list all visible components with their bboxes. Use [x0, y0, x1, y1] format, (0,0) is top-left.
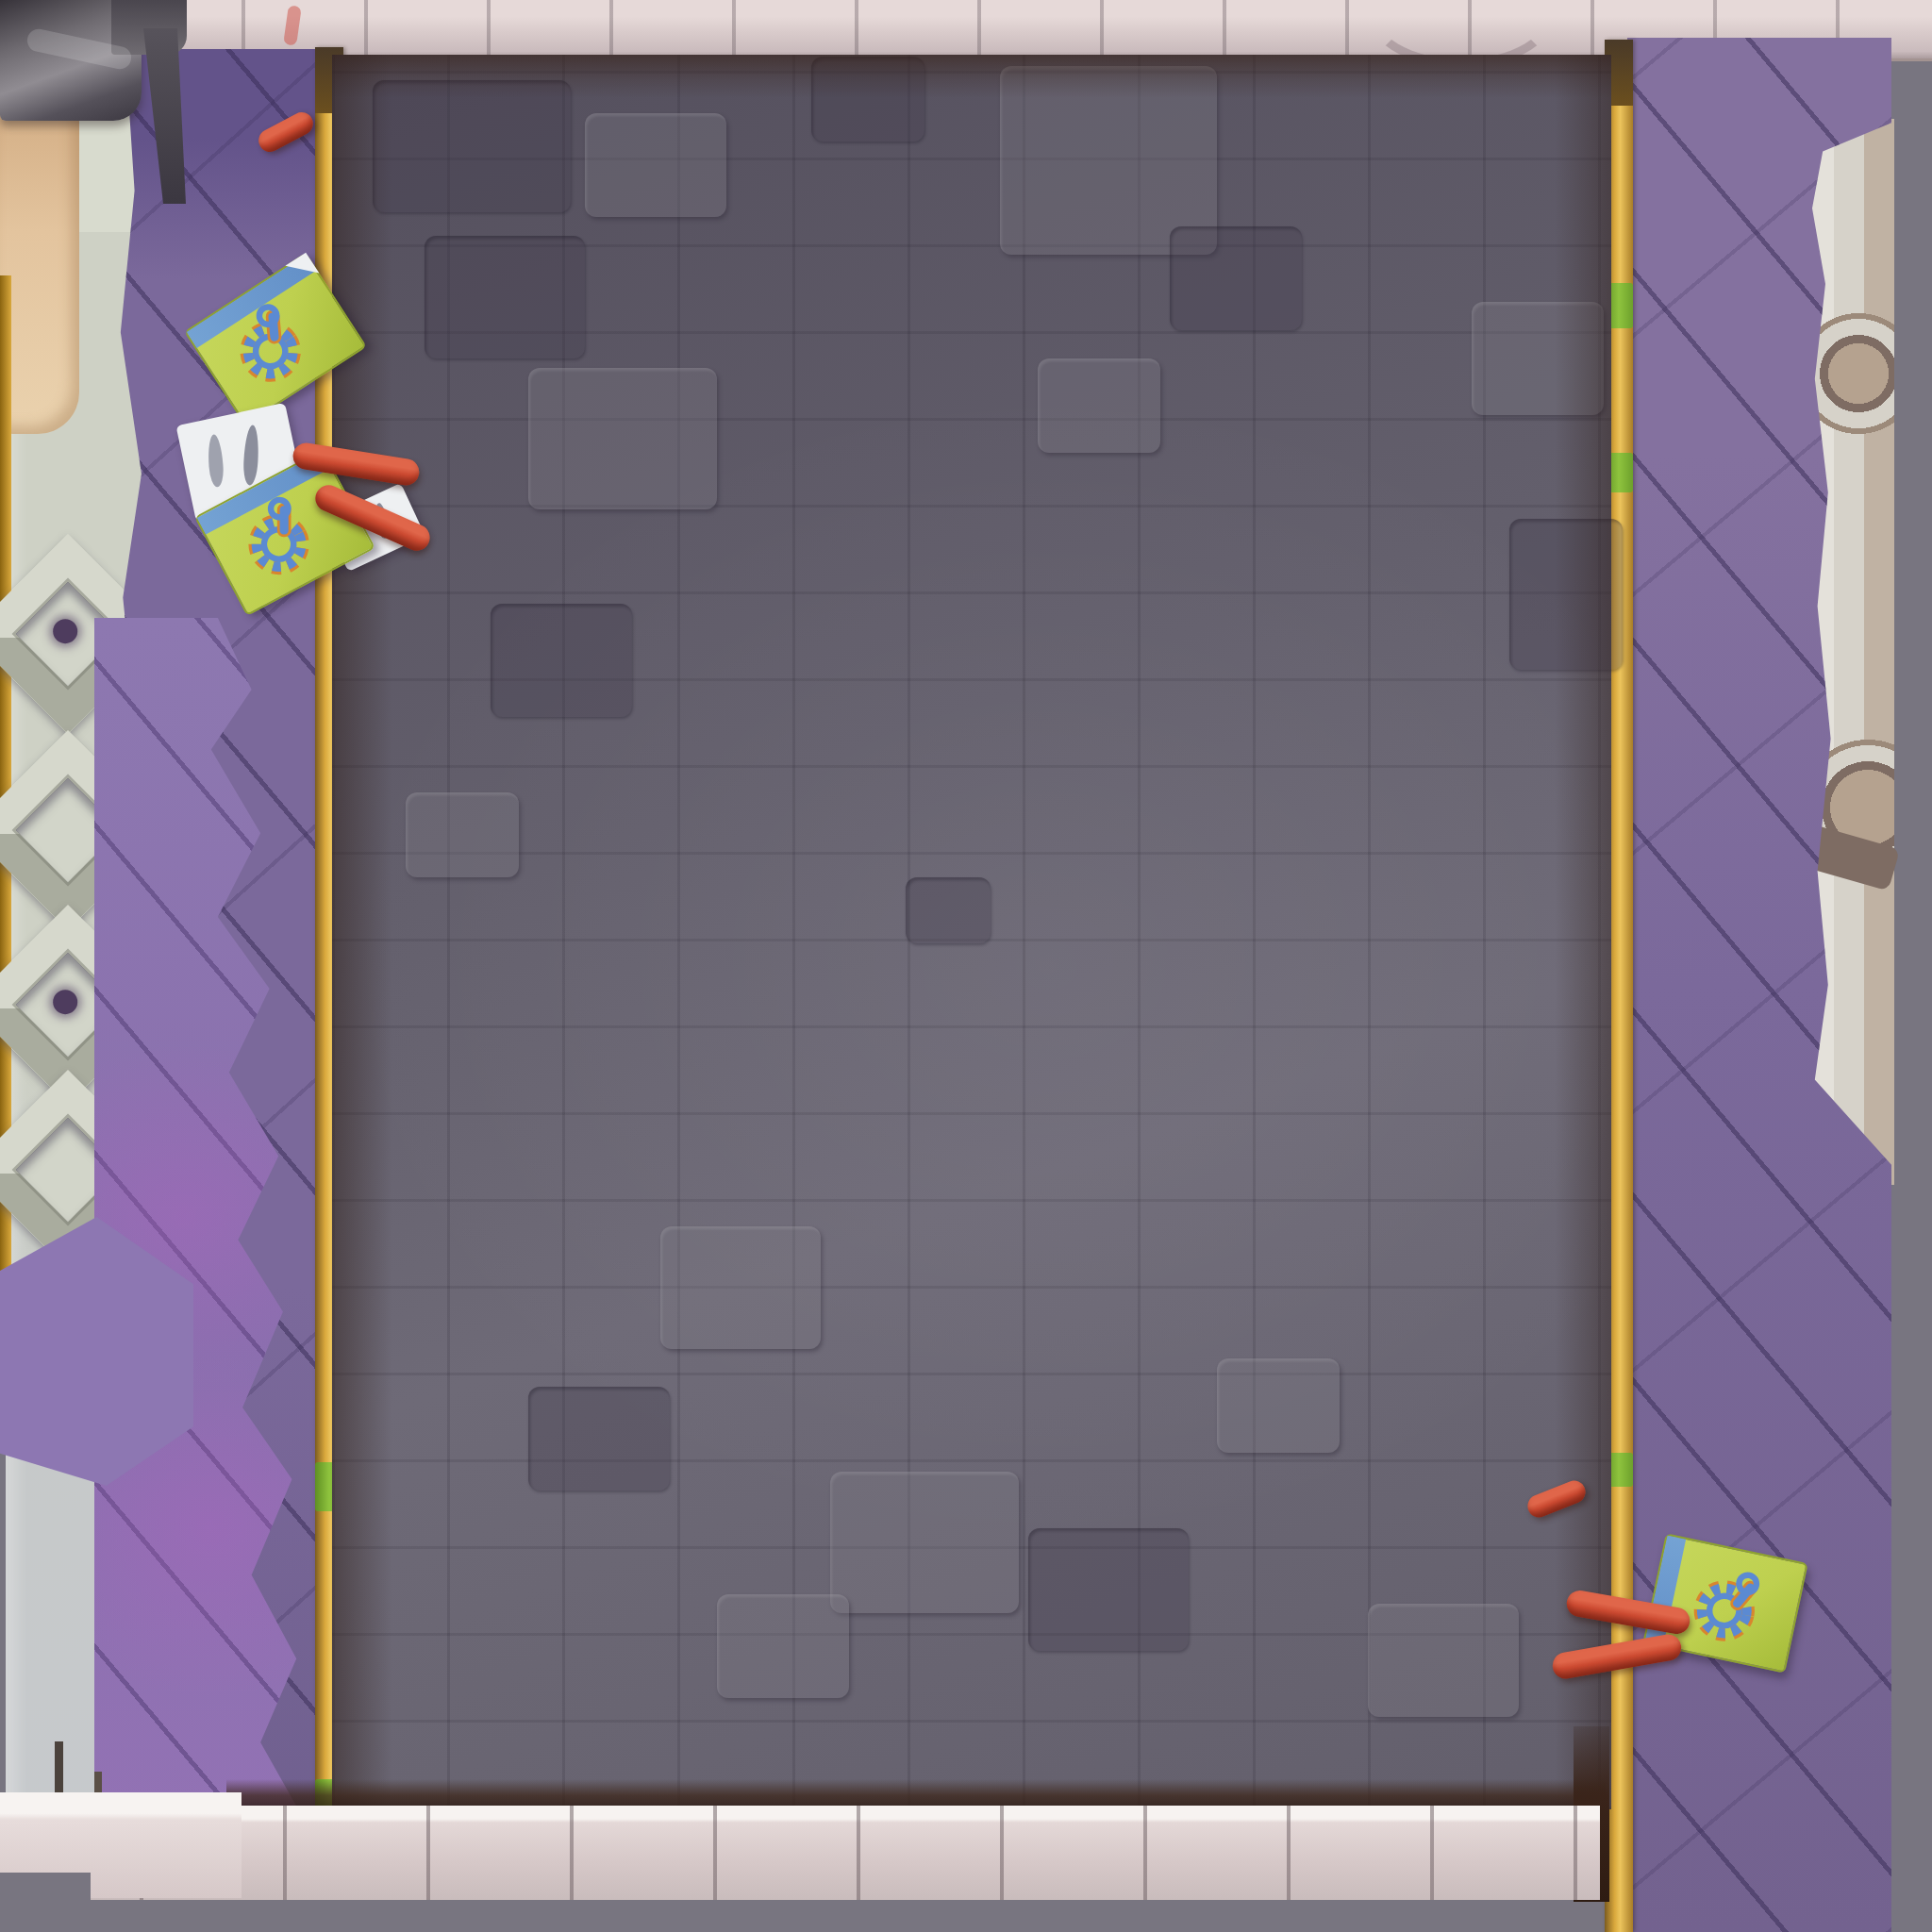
map-border-corner	[0, 1873, 91, 1932]
gear-wrench-emblem	[1671, 1554, 1790, 1660]
cobblestone	[425, 236, 585, 358]
cobblestone	[1217, 1358, 1340, 1453]
cobblestone	[373, 80, 571, 212]
cobblestone	[585, 113, 726, 217]
cobblestone	[660, 1226, 821, 1349]
cobblestone	[830, 1472, 1019, 1613]
cobblestone	[717, 1594, 849, 1698]
cobblestone-floor	[332, 55, 1611, 1809]
cobblestone	[528, 368, 717, 509]
floor-shadow-right	[1555, 55, 1611, 1809]
cobblestone	[1028, 1528, 1189, 1651]
cobblestone	[906, 877, 991, 943]
game-map-canvas	[0, 0, 1932, 1932]
cobblestone	[1170, 226, 1302, 330]
tan-wall	[0, 66, 79, 434]
cobblestone	[1038, 358, 1160, 453]
cobblestone	[406, 792, 519, 877]
floor-shadow-top	[332, 55, 1611, 98]
cobblestone	[491, 604, 632, 717]
cobblestone	[528, 1387, 670, 1491]
cobblestone	[1368, 1604, 1519, 1717]
